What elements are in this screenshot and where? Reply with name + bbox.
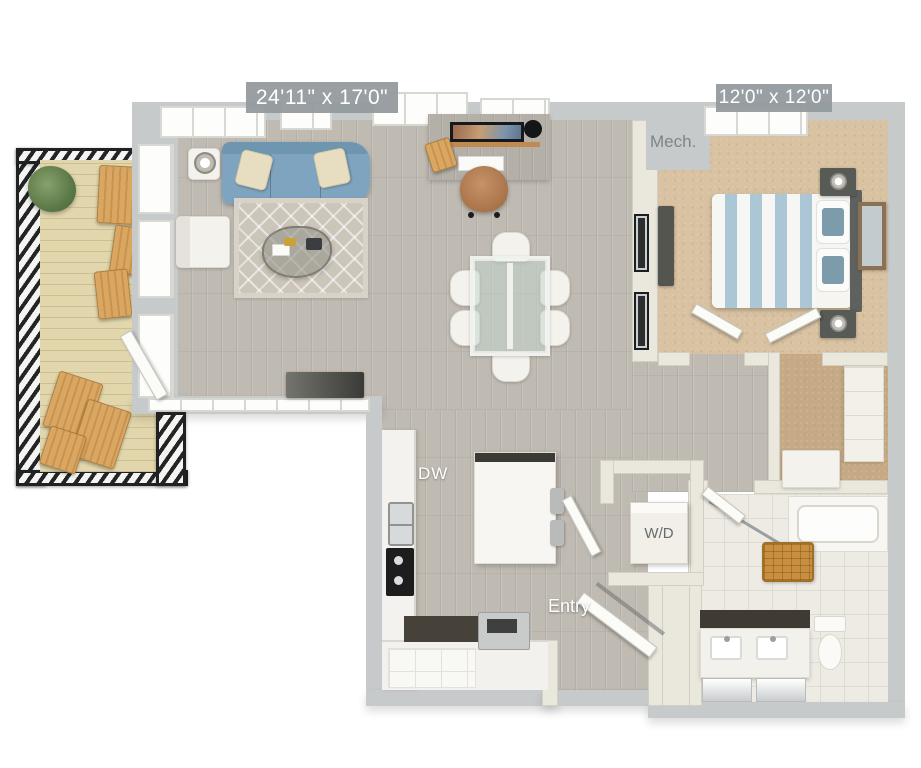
desk-chair-leg [494,212,500,218]
pillow-accent [822,208,844,236]
closet-shelving [844,366,884,462]
wall-art-1 [634,214,649,272]
washer-dryer-unit: W/D [630,502,688,564]
deck-chair-3 [94,268,133,319]
wall-right [888,120,905,718]
kitchen-island [474,452,556,564]
speaker [524,120,542,138]
monitor [450,122,524,142]
pillow-accent [822,256,844,284]
closet-dresser [782,450,840,488]
bath-mat-basket [762,542,814,582]
bed-pillow-2 [816,248,850,292]
wall-bedroom-south-2 [744,352,770,366]
vanity-counter-dark [700,610,810,628]
monitor-screen [453,125,521,139]
faucet [770,636,776,642]
balcony-railing-right-lower [156,412,186,486]
coffee-table-tray [284,238,296,246]
laundry-closet-wall-bottom [608,572,704,586]
nightstand-lamp-south [830,315,847,332]
desk-chair-leg [468,212,474,218]
kitchen-tile-floor [388,648,476,688]
bedroom-dimensions-text: 12'0" x 12'0" [719,87,830,109]
vanity-mirror-1 [702,678,752,702]
wall-closet-west [768,352,780,494]
faucet [724,636,730,642]
wall-kitchen-south [366,690,558,706]
burner [394,556,403,565]
dining-table-brace [507,263,513,349]
bed-blanket [712,194,816,308]
bathtub-basin [797,505,879,543]
vanity-sink-2 [756,636,788,660]
wall-bedroom-south-3 [822,352,888,366]
kitchen-sink [388,502,414,546]
laundry-closet-wall-right [690,460,704,586]
laundry-closet-wall-top [600,460,704,474]
floor-plan: W/D 24'11" x 17'0" [0,0,921,768]
desk-chair [460,166,508,212]
wall-kitchen-west [366,414,382,706]
bedroom-dresser [658,206,674,286]
island-stool-2 [550,520,564,546]
island-dark-edge [475,453,555,462]
window-balcony-1 [138,144,174,214]
washer-dryer-label: W/D [644,525,673,542]
wall-bedroom-south-1 [658,352,690,366]
toilet-bowl [818,634,842,670]
table-lamp [194,152,216,174]
nightstand-lamp-north [830,173,847,190]
burner [394,576,403,585]
entry-label: Entry [548,596,590,617]
kitchen-counter-dark [404,616,480,642]
picture-frame [858,202,886,270]
coffee-table-tablet [306,238,322,250]
living-dimensions-text: 24'11" x 17'0" [256,86,388,110]
mech-label: Mech. [650,132,696,152]
stove [386,548,414,596]
living-dimensions-badge: 24'11" x 17'0" [246,82,398,113]
laundry-closet-wall-left [600,460,614,504]
wall-art-2 [634,292,649,350]
vanity-sink-1 [710,636,742,660]
window-living-south [148,398,370,412]
microwave [478,612,530,650]
tv-console [286,372,364,398]
wall-entry-south [542,690,664,706]
dining-table [470,256,550,356]
bedroom-dimensions-badge: 12'0" x 12'0" [716,84,832,112]
toilet-tank [814,616,846,632]
potted-plant [28,166,76,212]
armchair [176,216,230,268]
dishwasher-label: DW [418,464,448,484]
vanity-mirror-2 [756,678,806,702]
window-balcony-2 [138,220,174,298]
dining-chair-south [492,352,530,382]
sink-divider [390,524,412,526]
wall-entry-bath-block [662,575,690,706]
bed-pillow-1 [816,200,850,244]
microwave-door [487,619,517,633]
